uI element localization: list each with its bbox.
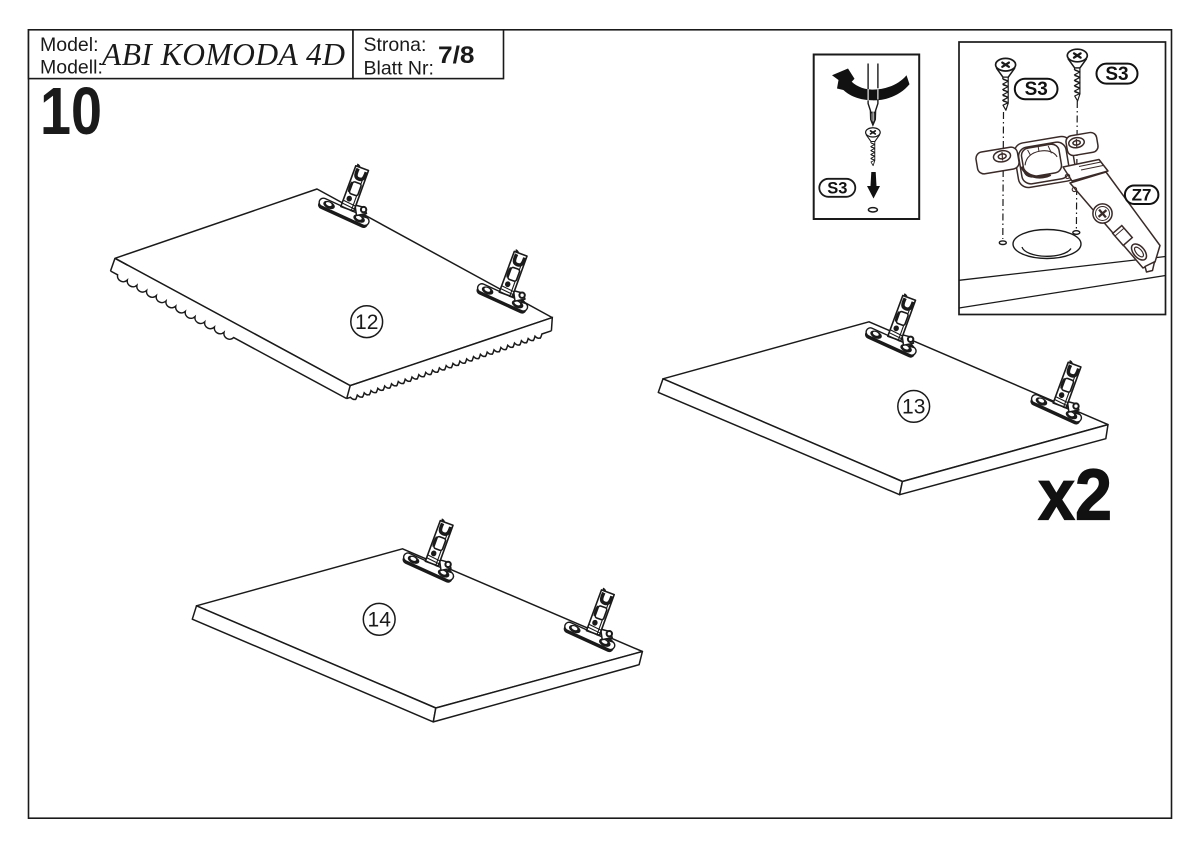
svg-text:10: 10 (40, 74, 102, 149)
svg-text:14: 14 (368, 609, 392, 632)
svg-text:13: 13 (902, 396, 925, 419)
svg-text:12: 12 (355, 311, 378, 334)
svg-text:7/8: 7/8 (438, 42, 475, 69)
svg-text:Model:: Model: (40, 34, 99, 56)
svg-text:S3: S3 (1105, 64, 1128, 85)
svg-text:x2: x2 (1038, 456, 1112, 536)
svg-text:ABI KOMODA 4D: ABI KOMODA 4D (100, 37, 345, 72)
svg-text:S3: S3 (827, 179, 847, 197)
svg-text:S3: S3 (1025, 79, 1048, 100)
svg-text:Strona:: Strona: (364, 34, 427, 56)
svg-text:Blatt Nr:: Blatt Nr: (364, 58, 434, 80)
svg-text:Z7: Z7 (1132, 185, 1152, 204)
